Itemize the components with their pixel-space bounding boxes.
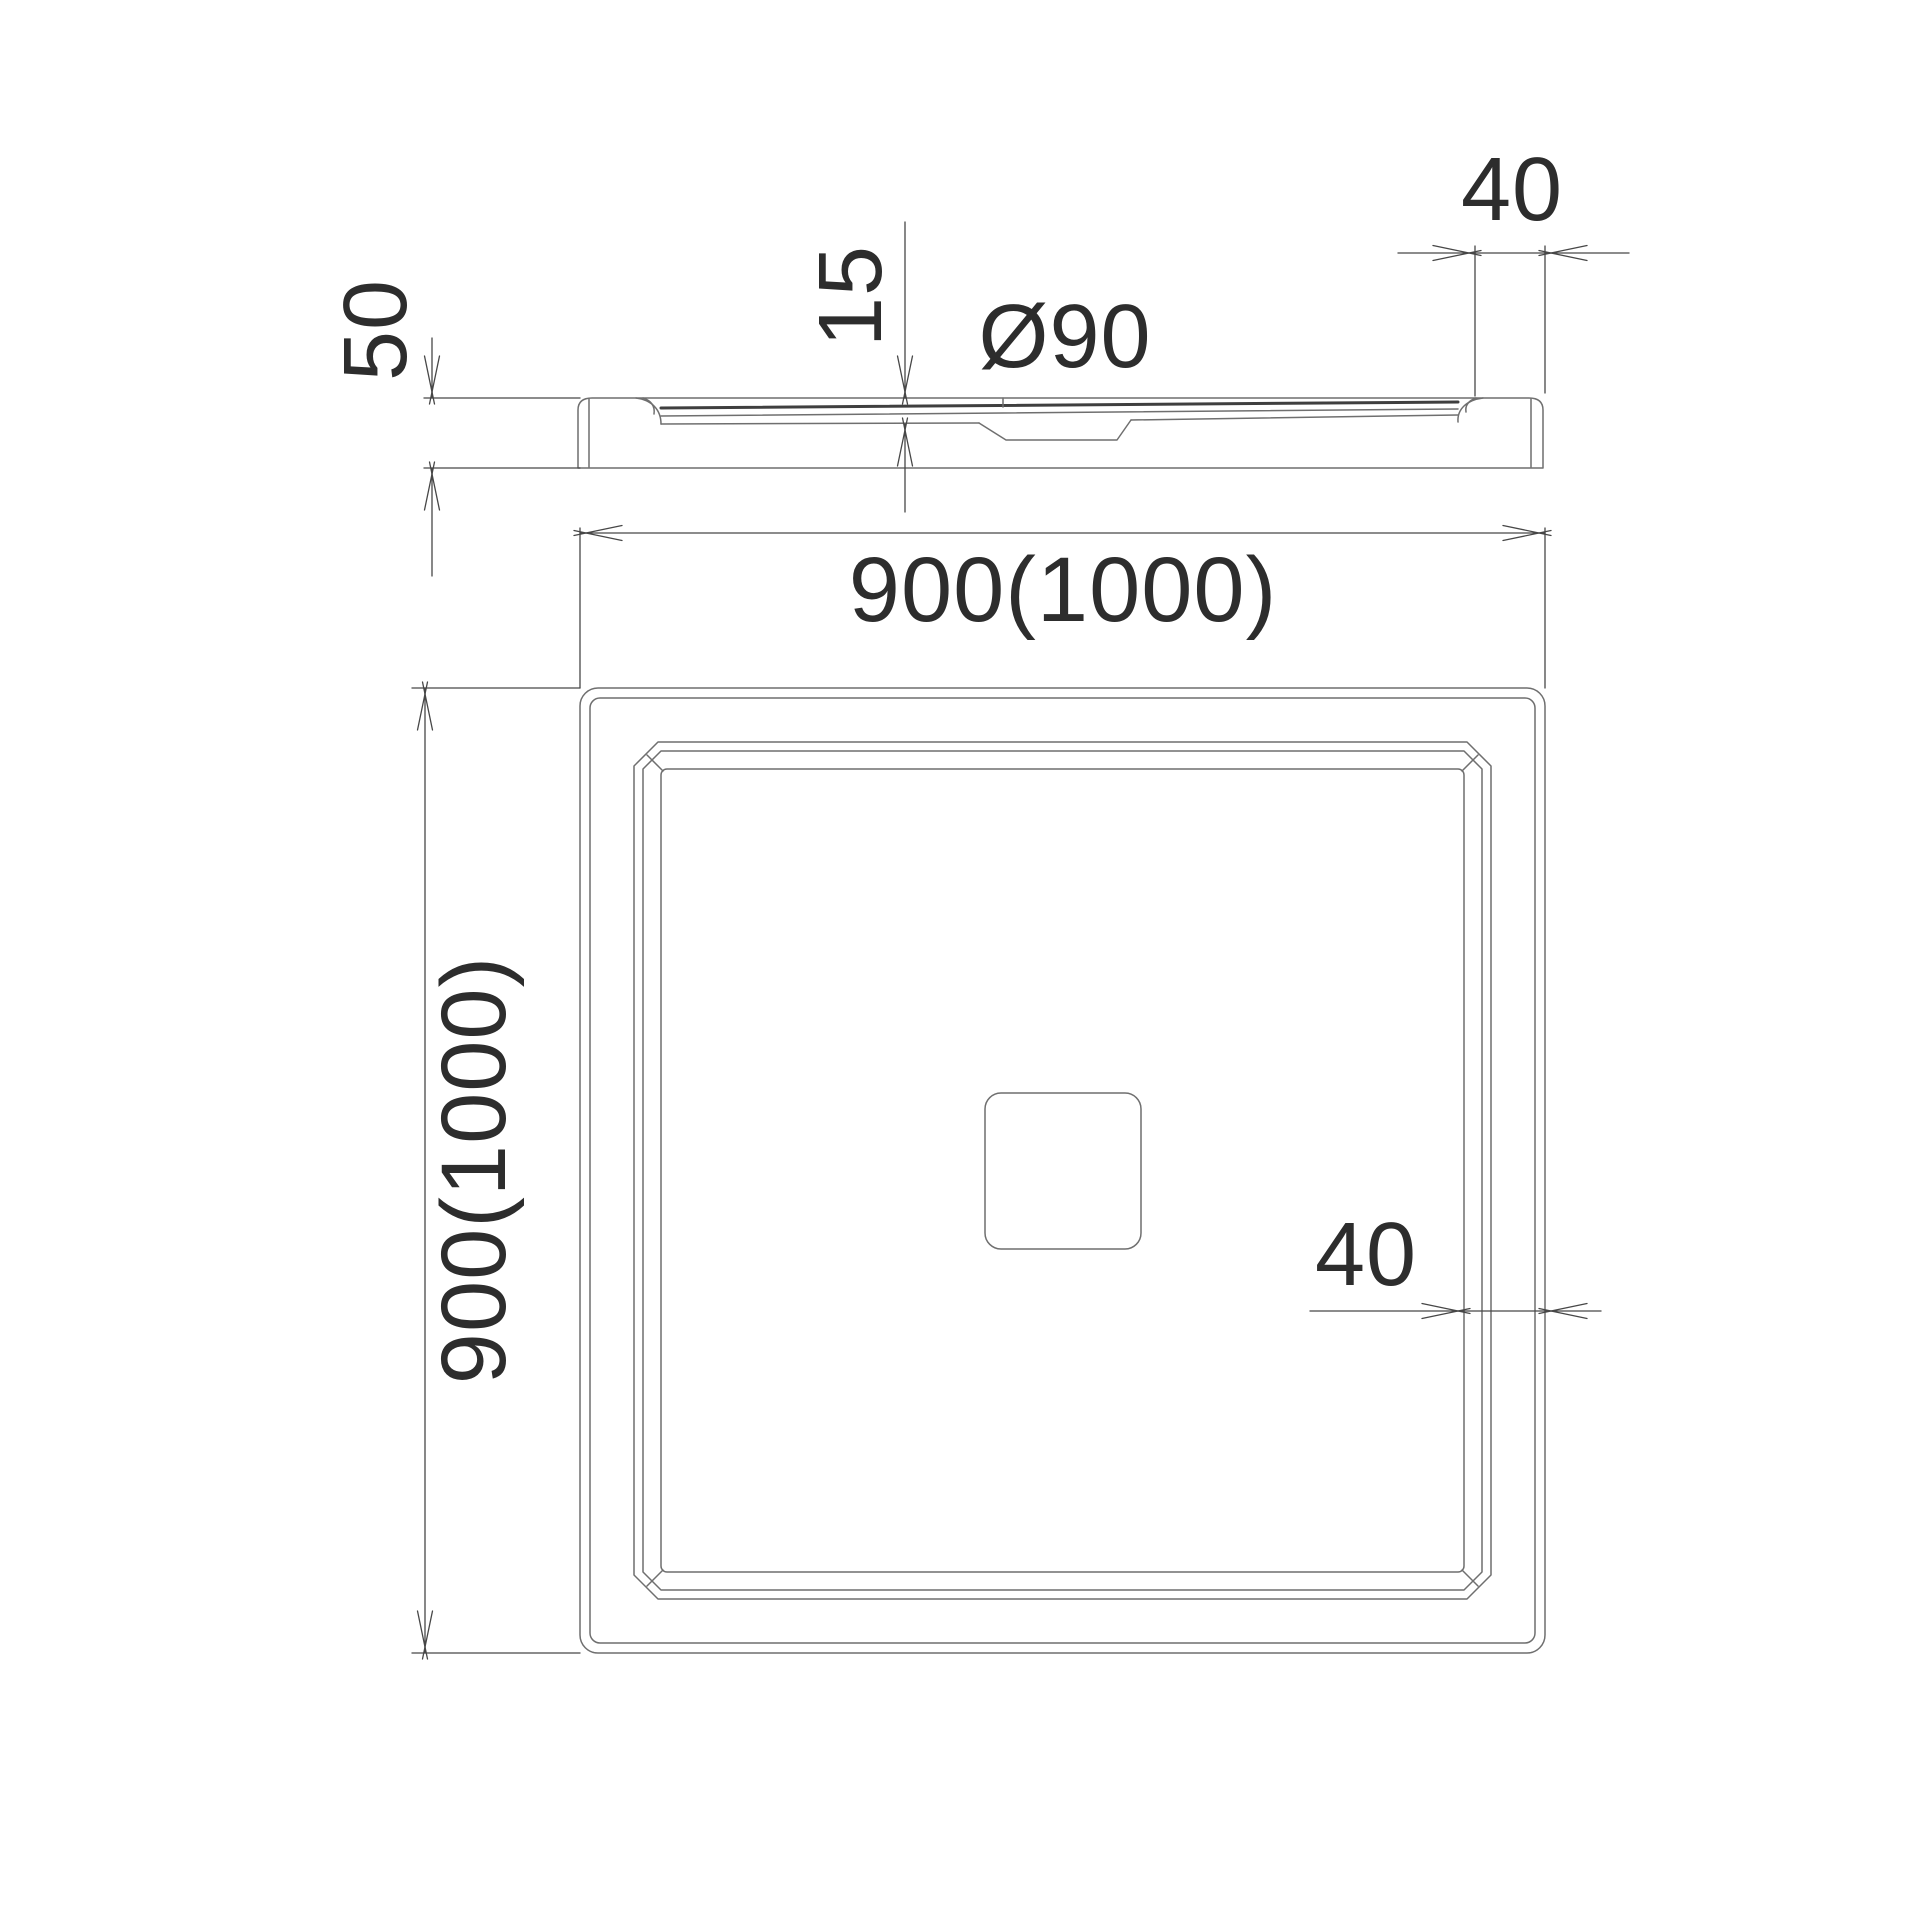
dim-depth-15-label: 15: [806, 245, 896, 347]
side-elevation-view: [578, 398, 1543, 468]
dim-rim-40-plan: [1310, 1304, 1601, 1319]
dim-rim-40-side: [1398, 246, 1629, 397]
dim-drain-diameter-label: Ø90: [978, 292, 1151, 382]
drawing-sheet: 50 15 Ø90 40 900(1000) 900(1000) 40: [0, 0, 1920, 1920]
technical-drawing-canvas: [0, 0, 1920, 1920]
drain-cover: [985, 1093, 1141, 1249]
dim-height-50: [424, 338, 580, 576]
dim-overall-depth-label: 900(1000): [428, 956, 520, 1384]
plan-view: [580, 688, 1545, 1653]
dim-height-50-label: 50: [331, 279, 421, 381]
dim-rim-40-side-label: 40: [1461, 145, 1563, 235]
dim-overall-width-label: 900(1000): [849, 544, 1277, 636]
dim-rim-40-plan-label: 40: [1315, 1210, 1417, 1300]
dimension-lines: [412, 222, 1629, 1659]
